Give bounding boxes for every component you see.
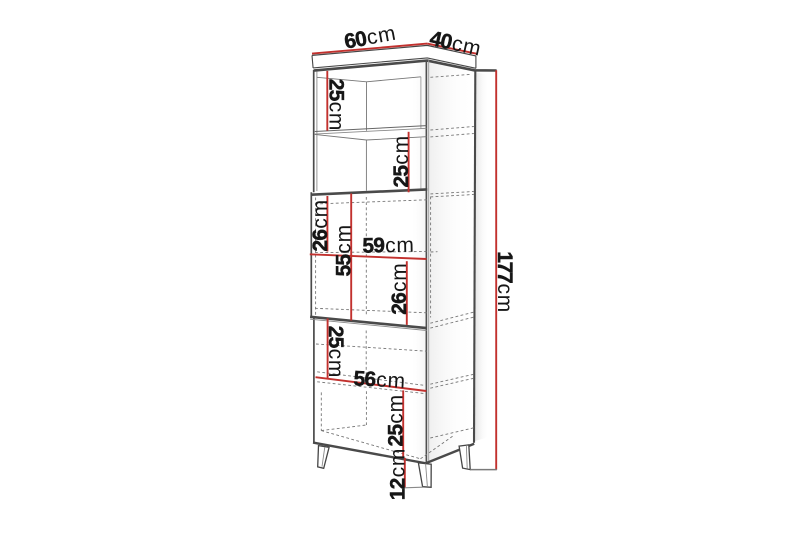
svg-text:56cm: 56cm bbox=[353, 367, 406, 393]
svg-text:12cm: 12cm bbox=[387, 448, 410, 500]
svg-text:177cm: 177cm bbox=[493, 251, 516, 313]
svg-text:26cm: 26cm bbox=[388, 262, 411, 314]
svg-text:25cm: 25cm bbox=[324, 326, 347, 378]
svg-text:55cm: 55cm bbox=[333, 224, 356, 276]
svg-text:25cm: 25cm bbox=[325, 79, 348, 131]
svg-text:25cm: 25cm bbox=[390, 135, 413, 187]
svg-text:26cm: 26cm bbox=[309, 199, 332, 251]
svg-text:59cm: 59cm bbox=[362, 234, 415, 258]
svg-text:25cm: 25cm bbox=[384, 394, 407, 446]
